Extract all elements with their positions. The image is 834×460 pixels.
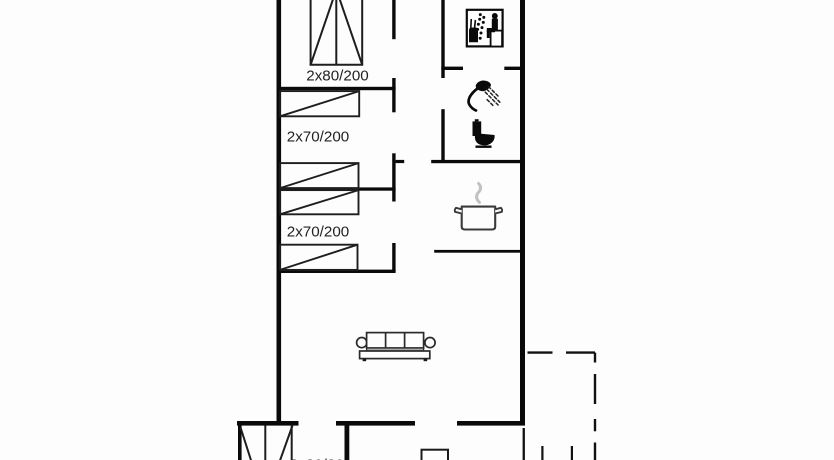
svg-text:2x70/200: 2x70/200 <box>287 224 350 241</box>
svg-text:2x70/200: 2x70/200 <box>287 129 350 146</box>
svg-text:2x80/200: 2x80/200 <box>290 457 353 460</box>
svg-text:2x80/200: 2x80/200 <box>306 68 369 85</box>
